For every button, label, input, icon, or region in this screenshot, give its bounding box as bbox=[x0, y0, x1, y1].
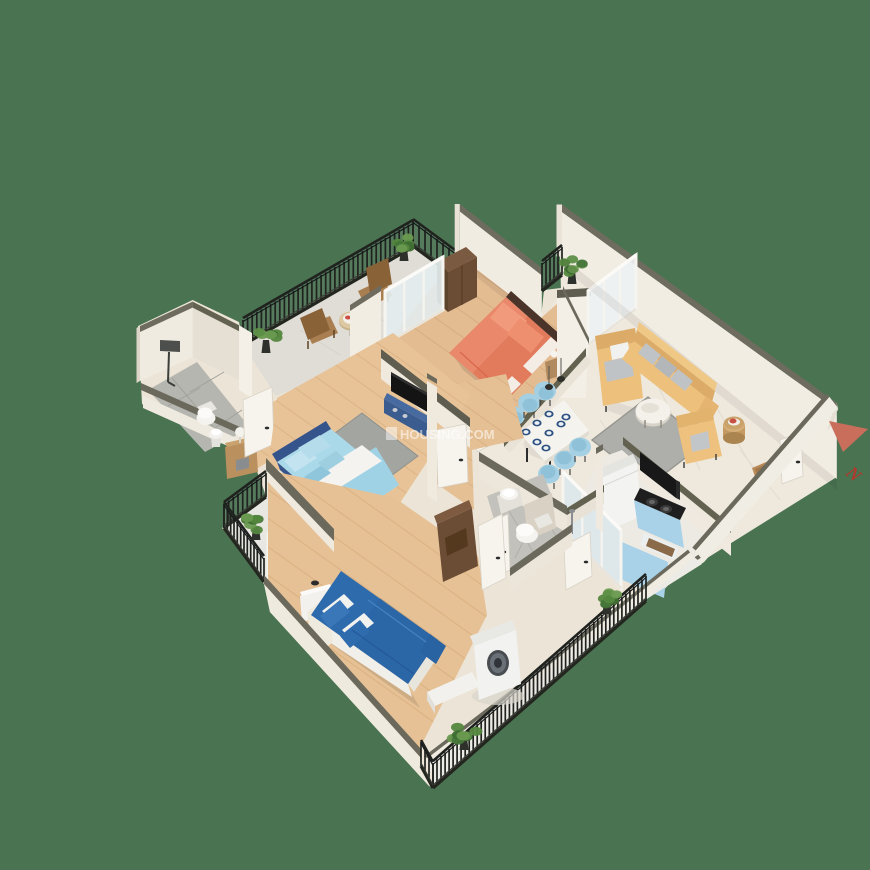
svg-text:HOUSING.COM: HOUSING.COM bbox=[400, 427, 495, 442]
